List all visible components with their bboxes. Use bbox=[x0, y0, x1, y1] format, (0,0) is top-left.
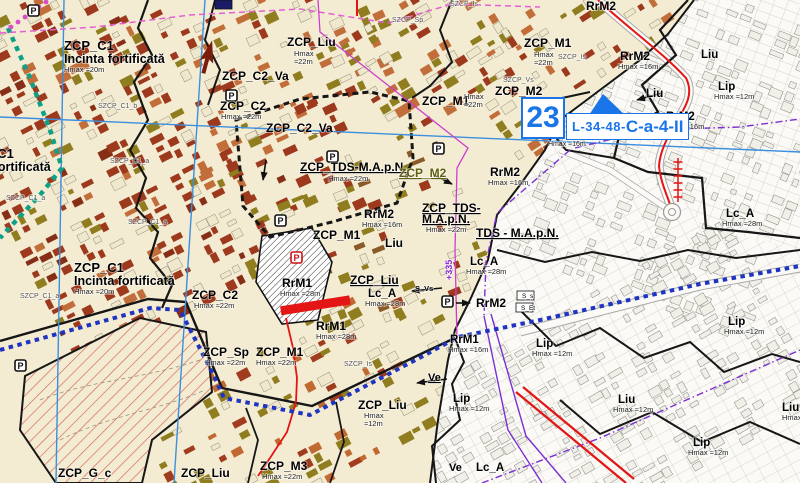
map-label-zcp-tds-1-hmax: Hmax ≈22m bbox=[328, 174, 368, 183]
map-label-liu-ne-1: Liu bbox=[701, 49, 718, 61]
map-label-zcp-liu-s-h2: ≈12m bbox=[364, 419, 383, 428]
map-label-zcp-liu-top-h2: ≈22m bbox=[294, 57, 313, 66]
map-label-tds-mapn: TDS - M.A.p.N. bbox=[476, 226, 559, 240]
map-label-zcp-c1-mid-hmax: Hmax ≈20m bbox=[74, 287, 114, 296]
map-label-rrm2-ne-hmax: Hmax ≈16m bbox=[618, 62, 658, 71]
map-label-zcp-m3: ZCP_M3 bbox=[260, 459, 308, 473]
map-label-szcp-2: SZCP_C1_b bbox=[98, 103, 137, 110]
map-label-liu-e-hmax: Hmax bbox=[782, 413, 800, 422]
map-label-lip-2-hmax: Hmax ≈12m bbox=[532, 349, 572, 358]
map-label-zcp-c1-mid-sub: Incinta fortificată bbox=[74, 274, 176, 288]
map-label-zcp-liu-sw: ZCP_Liu bbox=[181, 466, 230, 480]
navy-box-symbol bbox=[215, 0, 232, 9]
map-label-lc-a-4-hmax: Hmax ≈28m bbox=[722, 219, 762, 228]
map-label-rrm2-top: RrM2 bbox=[586, 0, 616, 13]
map-label-lip-ne-hmax: Hmax ≈12m bbox=[714, 92, 754, 101]
map-label-szcp-5: SZCP_C1_a bbox=[20, 293, 59, 300]
map-label-liu-s-hmax: Hmax ≈12m bbox=[613, 405, 653, 414]
map-sheet-number-badge: 23 bbox=[521, 97, 565, 139]
map-label-lip-1-hmax: Hmax ≈12m bbox=[449, 404, 489, 413]
map-label-rrm2-1: RrM2 bbox=[490, 165, 520, 179]
map-label-rrm1-2-hmax: Hmax ≈28m bbox=[316, 332, 356, 341]
map-label-rrm1-1-hmax: Hmax ≈28m bbox=[280, 289, 320, 298]
map-label-s-et: S_Et bbox=[521, 305, 535, 312]
map-label-km-335: +335 bbox=[444, 260, 454, 280]
map-label-szcp-4: SZCP_C1_a bbox=[128, 219, 167, 226]
map-label-zcp-tds-2-hmax: Hmax ≈22m bbox=[426, 225, 466, 234]
map-label-rrm2-1-hmax: Hmax ≈16m bbox=[488, 178, 528, 187]
map-sheet-number: 23 bbox=[526, 101, 559, 135]
map-label-zcp-c2-va-1: ZCP_C2_Va bbox=[222, 69, 289, 83]
map-label-zcp-c2-1: ZCP_C2 bbox=[220, 99, 266, 113]
map-label-zcp-m2-ne: ZCP_M2 bbox=[495, 84, 543, 98]
map-label-rrm2-2-hmax: Hmax ≈16m bbox=[362, 220, 402, 229]
map-label-zcp-c1-top-hmax: Hmax ≈20m bbox=[64, 65, 104, 74]
map-label-zcp-g-c: ZCP_G_c bbox=[58, 466, 112, 480]
zoning-map: PPPPPPPP ZCP_C1Incinta fortificatăHmax ≈… bbox=[0, 0, 800, 483]
map-label-zcp-c1-edge-sub: Incinta fortificată bbox=[0, 160, 52, 174]
parking-icon: P bbox=[28, 5, 39, 16]
parking-icon: P bbox=[442, 296, 453, 307]
parking-icon-letter: P bbox=[435, 144, 441, 154]
roundabout bbox=[664, 204, 681, 221]
map-label-zcp-c2-2-hmax: Hmax ≈22m bbox=[194, 301, 234, 310]
map-label-zcp-m1-sw-hmax: Hmax ≈22m bbox=[256, 358, 296, 367]
map-label-lc-a-2-hmax: Hmax ≈28m bbox=[365, 299, 405, 308]
map-label-zcp-tds-1: ZCP_TDS-M.A.p.N. bbox=[300, 160, 407, 174]
map-label-zcp-c1-mid: ZCP_C1 bbox=[74, 260, 124, 275]
map-label-szcp-1: SZCP_C1_a bbox=[6, 195, 45, 202]
map-label-s-s: S_s bbox=[522, 293, 534, 300]
map-label-rrm1-3-hmax: Hmax ≈16m bbox=[448, 345, 488, 354]
map-label-rrm1-2: RrM1 bbox=[316, 319, 346, 333]
map-label-zcp-liu-s: ZCP_Liu bbox=[358, 398, 407, 412]
parking-icon: P bbox=[291, 252, 302, 263]
map-label-ve-1: Ve bbox=[428, 372, 441, 384]
map-label-zcp-m2-olive: ZCP_M2 bbox=[399, 166, 447, 180]
map-sheet-code-badge: L-34-48- C-a-4-II bbox=[566, 113, 689, 140]
map-label-zcp-m1-c: ZCP_M1 bbox=[422, 94, 470, 108]
map-label-rrm2-3: RrM2 bbox=[476, 296, 506, 310]
map-label-szcp-is-2: SZCP_Is bbox=[558, 54, 587, 61]
map-label-zcp-sp-hmax: Hmax ≈22m bbox=[205, 358, 245, 367]
zoning-map-viewport[interactable]: PPPPPPPP ZCP_C1Incinta fortificatăHmax ≈… bbox=[0, 0, 800, 483]
map-label-zcp-m3-hmax: Hmax ≈22m bbox=[262, 472, 302, 481]
parking-icon: P bbox=[275, 215, 286, 226]
map-label-zcp-tds-2b: M.A.p.N. bbox=[422, 212, 470, 226]
map-label-zcp-c1-edge: ZCP_C1 bbox=[0, 146, 14, 161]
map-label-ve-2: Ve bbox=[449, 462, 462, 474]
map-label-liu-ne-2: Liu bbox=[646, 88, 663, 100]
parking-icon: P bbox=[15, 360, 26, 371]
map-label-zcp-c1-top: ZCP_C1 bbox=[64, 38, 114, 53]
map-label-szcp-vs: SZCP_Vs bbox=[503, 77, 534, 84]
map-label-zcp-c2-va-2: ZCP_C2_Va bbox=[266, 121, 333, 135]
map-label-zcp-liu-c: ZCP_Liu bbox=[350, 273, 399, 287]
map-label-lc-a-3: Lc_A bbox=[476, 462, 504, 474]
map-label-badge-hmax: Hmax ≈16m bbox=[548, 141, 586, 148]
map-sheet-code: C-a-4-II bbox=[626, 117, 684, 137]
parking-icon-letter: P bbox=[17, 361, 23, 371]
map-label-zcp-c1-top-sub: Incinta fortificată bbox=[64, 52, 166, 66]
map-label-zcp-m1-c-h2: ≈22m bbox=[464, 100, 483, 109]
map-label-szcp-is-3: SZCP_Is bbox=[344, 361, 373, 368]
map-label-zcp-m1-ne-h2: ≈22m bbox=[534, 58, 553, 67]
map-label-zcp-m1-ne: ZCP_M1 bbox=[524, 36, 572, 50]
map-label-szcp-sp: SZCP_Sp bbox=[392, 17, 423, 24]
parking-icon: P bbox=[433, 143, 444, 154]
map-label-lip-3-hmax: Hmax ≈12m bbox=[688, 448, 728, 457]
map-label-zcp-m1-s: ZCP_M1 bbox=[313, 228, 361, 242]
map-label-s-vs: S_Vs bbox=[415, 284, 433, 293]
map-label-liu-c: Liu bbox=[385, 236, 403, 250]
map-label-zcp-sp: ZCP_Sp bbox=[203, 345, 249, 359]
map-label-lc-a-1-hmax: Hmax ≈28m bbox=[466, 267, 506, 276]
map-label-zcp-c2-2: ZCP_C2 bbox=[192, 288, 238, 302]
map-label-rrm2-2: RrM2 bbox=[364, 207, 394, 221]
map-label-szcp-is-top: SZCP_Is bbox=[450, 1, 479, 8]
parking-icon-letter: P bbox=[277, 216, 283, 226]
map-label-zcp-liu-top: ZCP_Liu bbox=[287, 35, 336, 49]
map-label-zcp-m1-sw: ZCP_M1 bbox=[256, 345, 304, 359]
map-label-rrm1-1: RrM1 bbox=[282, 276, 312, 290]
parking-icon-letter: P bbox=[30, 6, 36, 16]
map-label-szcp-3: SZCP_C1_a bbox=[110, 158, 149, 165]
parking-icon-letter: P bbox=[444, 297, 450, 307]
map-label-rrm2-ne: RrM2 bbox=[620, 49, 650, 63]
map-label-zcp-c2-1-hmax: Hmax ≈22m bbox=[221, 112, 261, 121]
map-sheet-code-prefix: L-34-48- bbox=[572, 119, 626, 134]
map-label-lip-4-hmax: Hmax ≈12m bbox=[724, 327, 764, 336]
parking-icon-letter: P bbox=[293, 253, 299, 263]
